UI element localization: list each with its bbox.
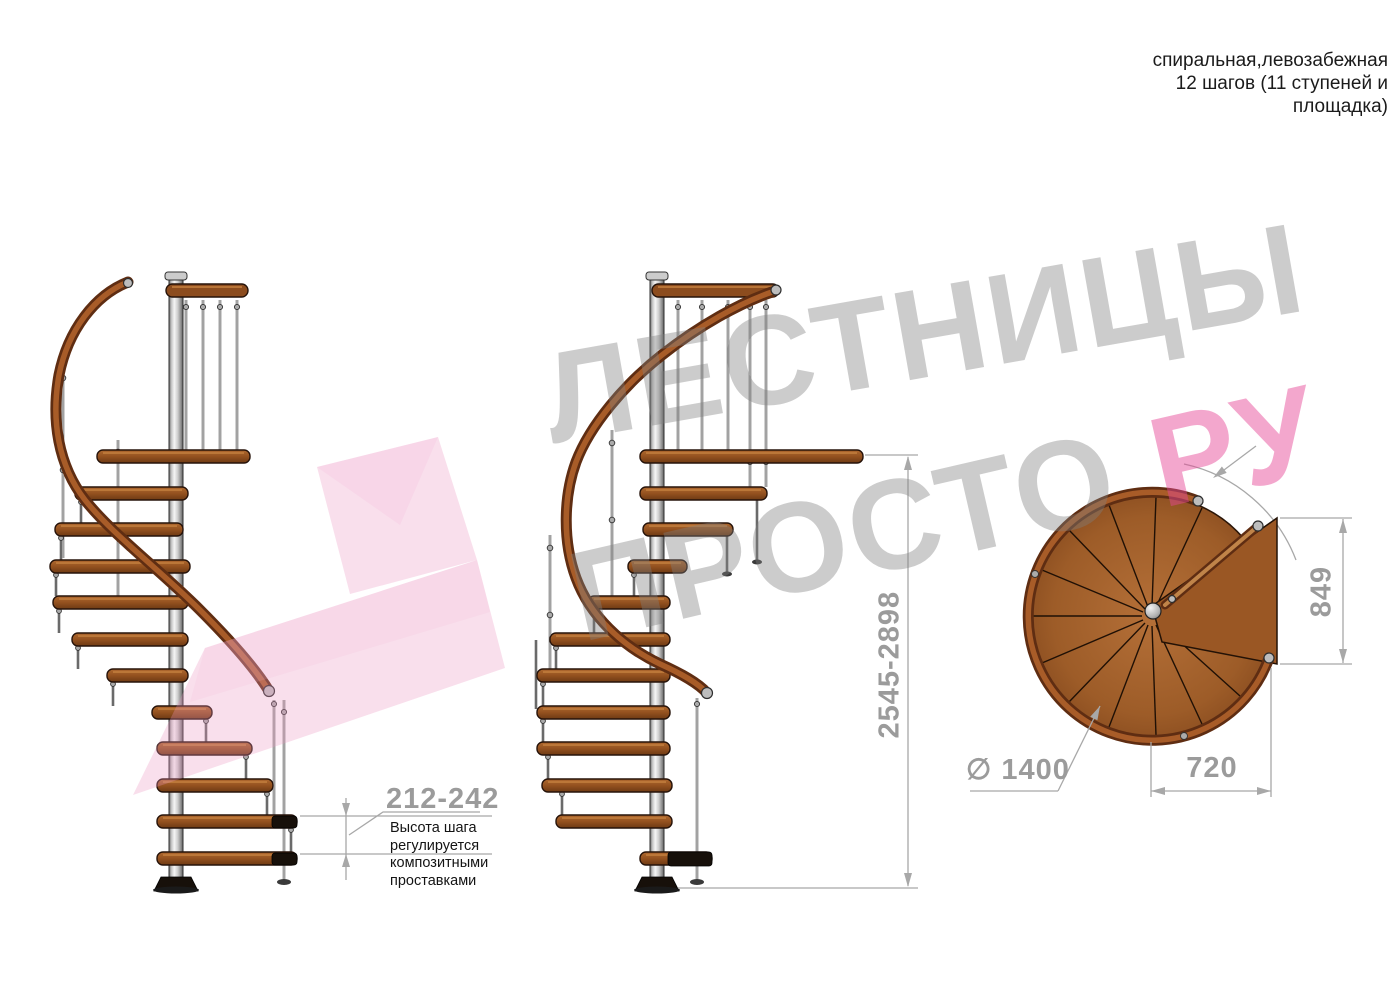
annotation-line-2: 12 шагов (11 ступеней и bbox=[1153, 72, 1388, 95]
total-height-value: 2545-2898 bbox=[874, 599, 907, 739]
landing-width-value: 720 bbox=[1162, 752, 1262, 785]
rail-start-cap bbox=[771, 285, 781, 295]
center-treads bbox=[537, 450, 863, 866]
technical-drawing-page: .bal{stroke:#6a6a6a;stroke-width:2.6;} .… bbox=[0, 0, 1400, 1000]
center-side-elevation bbox=[536, 272, 863, 894]
title-annotation: спиральная,левозабежная 12 шагов (11 сту… bbox=[1153, 49, 1388, 118]
rail-end-cap bbox=[702, 688, 713, 699]
step-height-note: Высота шага регулируется композитными пр… bbox=[390, 820, 488, 890]
landing-depth-value: 849 bbox=[1306, 542, 1339, 642]
annotation-line-3: площадка) bbox=[1153, 95, 1388, 118]
left-side-elevation bbox=[50, 272, 297, 894]
annotation-line-1: спиральная,левозабежная bbox=[1153, 49, 1388, 72]
center-pole-top bbox=[1145, 603, 1161, 619]
step-height-value: 212-242 bbox=[386, 783, 499, 816]
entry-direction-arrow bbox=[1213, 446, 1256, 478]
left-balustrade bbox=[60, 300, 239, 596]
rail-start-cap bbox=[124, 279, 133, 288]
staircase-drawing: .bal{stroke:#6a6a6a;stroke-width:2.6;} .… bbox=[0, 0, 1400, 1000]
diameter-value: ∅ 1400 bbox=[966, 752, 1070, 787]
plan-view bbox=[1028, 464, 1296, 740]
rail-end-cap bbox=[264, 686, 275, 697]
